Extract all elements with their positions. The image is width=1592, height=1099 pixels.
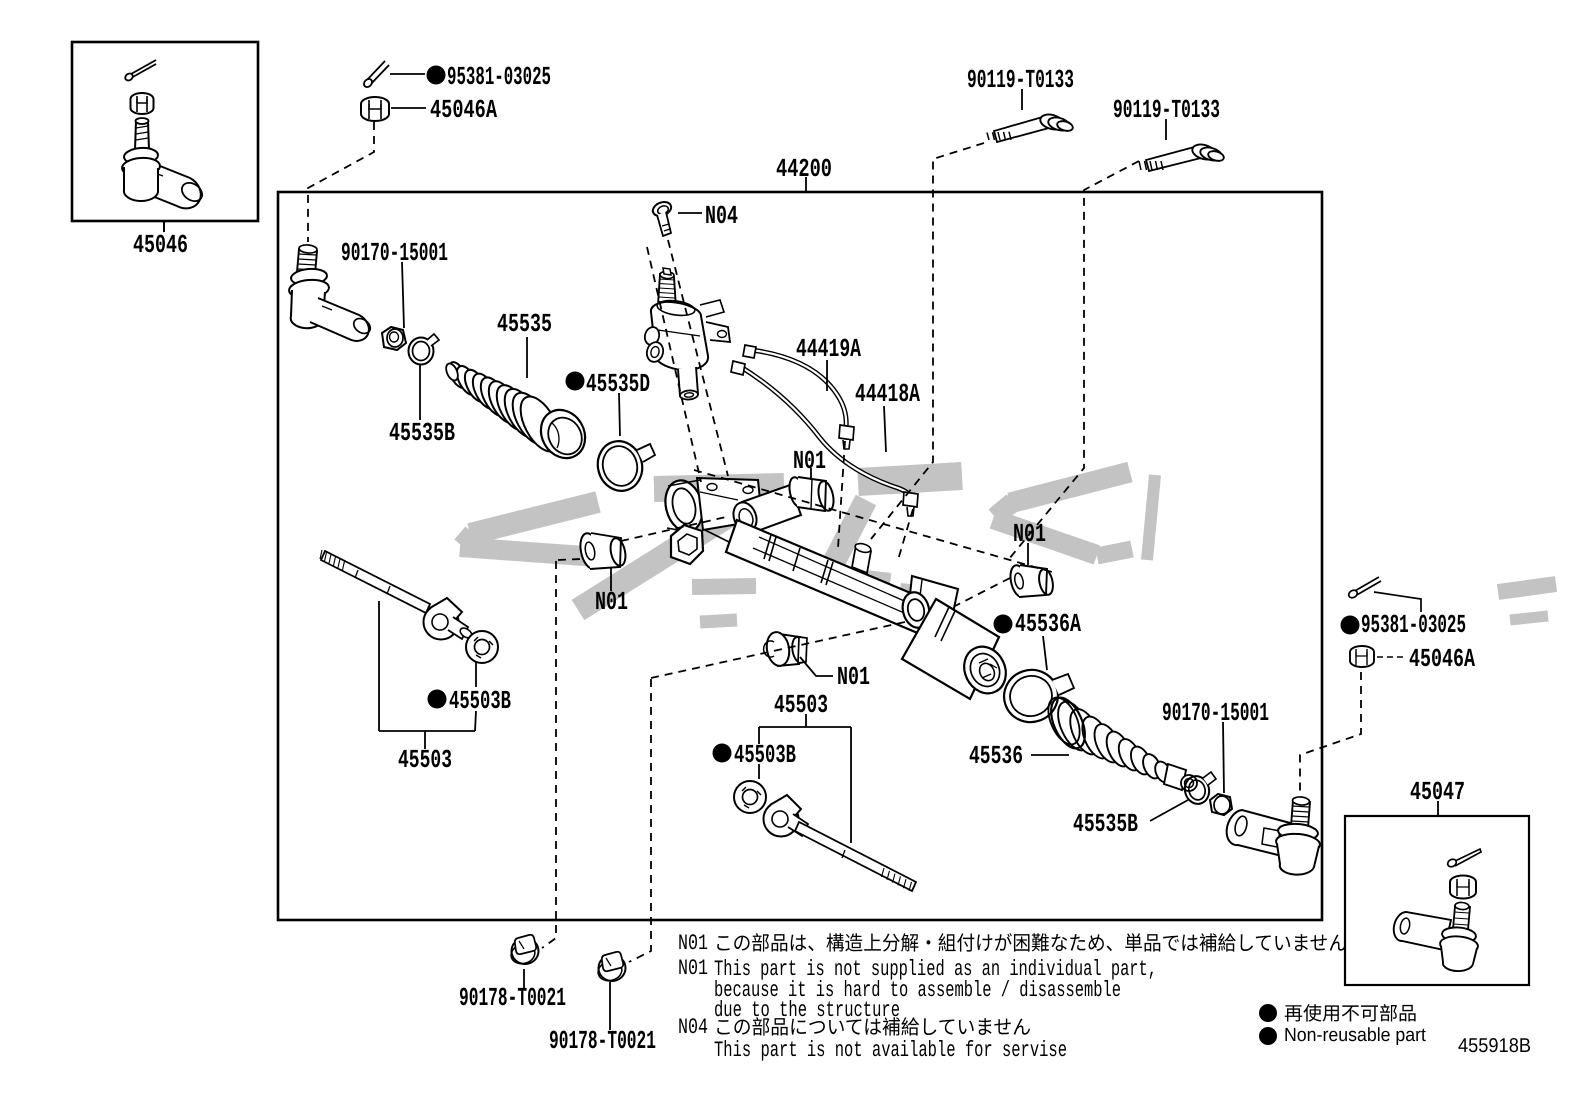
svg-text:この部品は、構造上分解・組付けが困難なため、単品では補給して: この部品は、構造上分解・組付けが困難なため、単品では補給していません xyxy=(714,933,1347,957)
svg-text:90178-T0021: 90178-T0021 xyxy=(549,1026,656,1056)
svg-text:再使用不可部品: 再使用不可部品 xyxy=(1284,1003,1417,1025)
svg-text:N01: N01 xyxy=(793,446,826,476)
svg-text:45535D: 45535D xyxy=(586,369,650,399)
svg-text:45503: 45503 xyxy=(398,745,452,775)
svg-text:45536A: 45536A xyxy=(1015,609,1081,639)
svg-text:N01: N01 xyxy=(678,931,708,956)
svg-text:90119-T0133: 90119-T0133 xyxy=(1113,95,1220,125)
svg-text:95381-03025: 95381-03025 xyxy=(1361,610,1466,640)
svg-text:45503B: 45503B xyxy=(449,686,511,716)
svg-text:N01: N01 xyxy=(1013,519,1046,549)
svg-text:45535B: 45535B xyxy=(1073,809,1138,839)
svg-text:45046: 45046 xyxy=(133,230,188,260)
svg-text:This part is not available for: This part is not available for servise xyxy=(714,1038,1067,1063)
svg-text:N04: N04 xyxy=(678,1015,708,1040)
svg-text:45046A: 45046A xyxy=(1409,644,1475,674)
svg-text:N01: N01 xyxy=(595,587,628,617)
svg-text:44419A: 44419A xyxy=(796,334,861,364)
svg-text:44418A: 44418A xyxy=(855,379,920,409)
svg-text:44200: 44200 xyxy=(776,154,832,184)
svg-text:45047: 45047 xyxy=(1410,777,1465,807)
svg-text:455918B: 455918B xyxy=(1458,1035,1531,1057)
svg-text:N01: N01 xyxy=(837,662,870,692)
svg-text:45536: 45536 xyxy=(969,741,1023,771)
svg-text:45535B: 45535B xyxy=(389,418,455,448)
svg-text:90170-15001: 90170-15001 xyxy=(341,238,448,268)
svg-text:45046A: 45046A xyxy=(430,95,497,125)
svg-text:90178-T0021: 90178-T0021 xyxy=(459,983,566,1013)
svg-text:N01: N01 xyxy=(678,956,708,981)
svg-text:45503: 45503 xyxy=(774,690,828,720)
svg-text:45535: 45535 xyxy=(497,309,552,339)
svg-text:45503B: 45503B xyxy=(734,740,796,770)
svg-text:N04: N04 xyxy=(705,201,738,231)
svg-text:90170-15001: 90170-15001 xyxy=(1162,698,1269,728)
svg-text:90119-T0133: 90119-T0133 xyxy=(967,65,1074,95)
svg-text:Non-reusable part: Non-reusable part xyxy=(1284,1025,1427,1046)
svg-text:95381-03025: 95381-03025 xyxy=(447,62,551,92)
